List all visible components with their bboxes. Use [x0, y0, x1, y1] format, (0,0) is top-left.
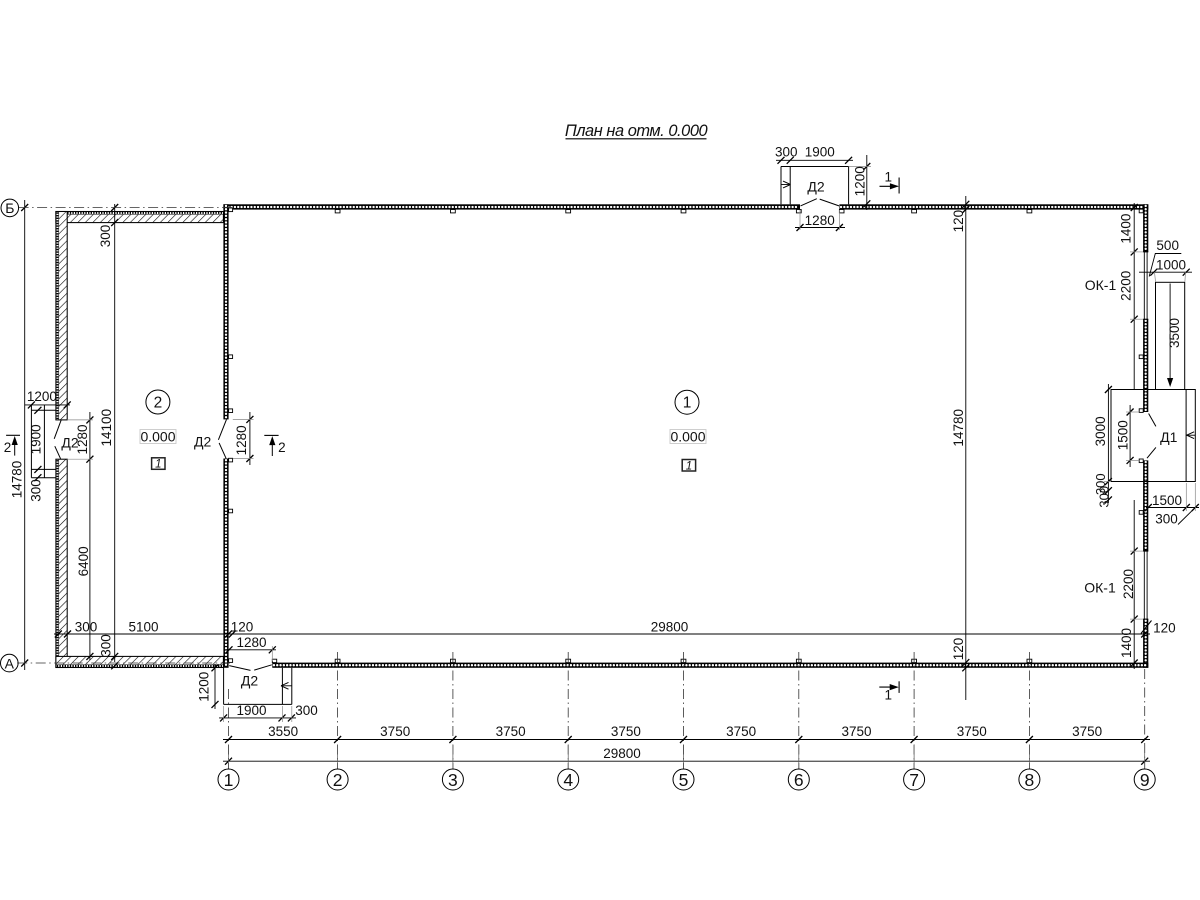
- svg-text:3750: 3750: [841, 724, 871, 739]
- svg-text:9: 9: [1140, 770, 1150, 790]
- svg-text:1280: 1280: [236, 635, 266, 650]
- svg-text:2200: 2200: [1121, 569, 1136, 599]
- svg-text:120: 120: [951, 638, 966, 661]
- svg-text:0.000: 0.000: [670, 428, 705, 444]
- svg-text:2: 2: [278, 440, 286, 455]
- svg-text:2: 2: [333, 770, 343, 790]
- svg-text:2: 2: [154, 395, 163, 412]
- svg-text:А: А: [5, 655, 15, 671]
- svg-text:3750: 3750: [1072, 724, 1102, 739]
- svg-text:1500: 1500: [1115, 420, 1130, 450]
- svg-text:300: 300: [1096, 486, 1111, 508]
- svg-text:8: 8: [1025, 770, 1035, 790]
- svg-text:1200: 1200: [27, 389, 57, 404]
- svg-text:1000: 1000: [1156, 257, 1186, 272]
- svg-text:1200: 1200: [853, 166, 868, 196]
- svg-text:Д2: Д2: [807, 178, 824, 194]
- svg-text:План на отм. 0.000: План на отм. 0.000: [565, 122, 708, 140]
- svg-text:1: 1: [224, 770, 234, 790]
- svg-text:14780: 14780: [951, 409, 966, 447]
- svg-text:300: 300: [295, 703, 318, 718]
- svg-text:1900: 1900: [805, 144, 835, 159]
- svg-text:ОК-1: ОК-1: [1084, 580, 1116, 596]
- svg-text:3750: 3750: [380, 724, 410, 739]
- svg-text:Д2: Д2: [194, 434, 211, 450]
- svg-text:7: 7: [909, 770, 919, 790]
- svg-text:300: 300: [1155, 511, 1178, 526]
- svg-text:Д2: Д2: [241, 673, 258, 689]
- svg-text:3750: 3750: [611, 724, 641, 739]
- svg-text:1: 1: [155, 459, 161, 471]
- svg-text:3750: 3750: [496, 724, 526, 739]
- svg-text:2: 2: [4, 440, 12, 455]
- svg-text:1900: 1900: [236, 703, 266, 718]
- svg-text:1: 1: [885, 170, 893, 185]
- svg-text:3550: 3550: [268, 724, 298, 739]
- svg-text:3500: 3500: [1167, 318, 1182, 348]
- svg-text:1400: 1400: [1119, 628, 1134, 658]
- svg-text:1500: 1500: [1152, 493, 1182, 508]
- svg-text:3: 3: [448, 770, 458, 790]
- svg-text:1400: 1400: [1118, 214, 1133, 244]
- svg-text:Б: Б: [5, 200, 14, 216]
- svg-text:2200: 2200: [1118, 271, 1133, 301]
- svg-text:29800: 29800: [603, 746, 641, 761]
- svg-text:500: 500: [1156, 238, 1179, 253]
- svg-text:Д1: Д1: [1160, 429, 1177, 445]
- svg-text:1: 1: [885, 688, 893, 703]
- svg-text:120: 120: [231, 620, 254, 635]
- svg-text:1900: 1900: [29, 424, 44, 454]
- svg-text:1: 1: [686, 460, 692, 472]
- svg-text:3000: 3000: [1093, 416, 1108, 446]
- svg-text:6: 6: [794, 770, 804, 790]
- svg-text:300: 300: [98, 225, 113, 248]
- svg-text:300: 300: [775, 145, 798, 160]
- svg-text:300: 300: [75, 620, 98, 635]
- svg-text:120: 120: [951, 210, 966, 233]
- svg-text:14100: 14100: [99, 409, 114, 447]
- svg-text:300: 300: [28, 479, 43, 502]
- svg-text:0.000: 0.000: [140, 428, 175, 444]
- svg-text:6400: 6400: [76, 546, 91, 576]
- svg-text:1200: 1200: [197, 672, 212, 702]
- svg-text:3750: 3750: [957, 724, 987, 739]
- svg-text:4: 4: [563, 770, 573, 790]
- svg-text:3750: 3750: [726, 724, 756, 739]
- svg-text:14780: 14780: [9, 461, 24, 499]
- svg-text:5: 5: [679, 770, 689, 790]
- svg-text:29800: 29800: [651, 620, 689, 635]
- svg-text:5100: 5100: [128, 620, 158, 635]
- svg-text:1280: 1280: [805, 213, 835, 228]
- svg-text:1: 1: [683, 395, 692, 412]
- svg-text:120: 120: [1153, 620, 1176, 635]
- svg-text:300: 300: [98, 634, 113, 657]
- svg-text:1280: 1280: [75, 424, 90, 454]
- svg-text:1280: 1280: [234, 425, 249, 455]
- svg-text:ОК-1: ОК-1: [1085, 277, 1117, 293]
